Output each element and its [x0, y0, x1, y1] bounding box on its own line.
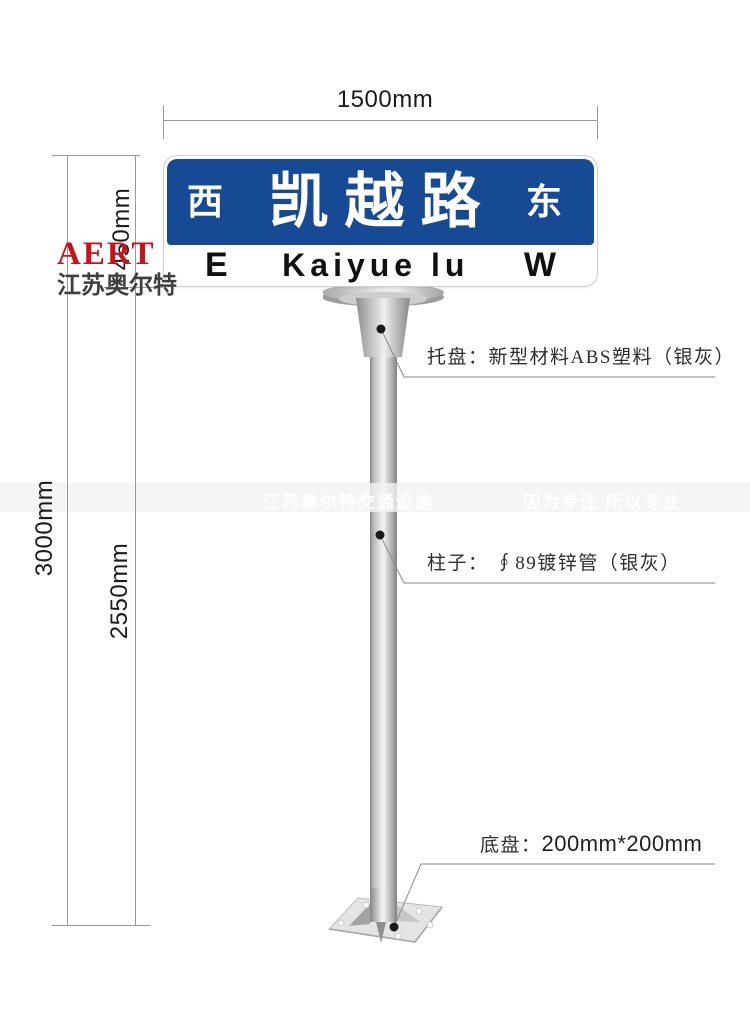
tray-neck [356, 298, 410, 357]
bolt-hole [338, 920, 344, 926]
logo-brand-text: AERT [57, 238, 177, 271]
sign-direction-west: 西 [187, 184, 223, 220]
bolt-hole [363, 902, 369, 908]
logo-company-text: 江苏奥尔特 [57, 274, 177, 298]
sign-blue-panel: 西 凯越路 东 [167, 159, 594, 245]
annotation-pole: 柱子： ∮89镀锌管（银灰） [427, 548, 681, 575]
diagram-canvas: 江苏奥尔特交通设施 因为专注 所以专业 [0, 0, 750, 1021]
street-sign-board: 西 凯越路 东 E Kaiyue lu W [163, 155, 598, 287]
sign-road-name-cn: 凯越路 [253, 172, 497, 232]
bolt-hole [427, 922, 433, 928]
dimension-label-pole-height: 2550mm [106, 535, 134, 647]
bolt-hole [416, 908, 422, 914]
base-plate-graphic [320, 888, 465, 954]
dimension-label-width: 1500mm [325, 86, 445, 114]
sign-white-strip: E Kaiyue lu W [167, 245, 594, 285]
pole-bottom [370, 888, 397, 922]
dimension-label-total-height: 3000mm [31, 472, 59, 584]
watermark-text-right: 因为专注 所以专业 [523, 488, 682, 512]
pole-shaft [370, 356, 397, 890]
sign-road-name-en: Kaiyue lu [282, 249, 469, 281]
annotation-base: 底盘：200mm*200mm [480, 830, 702, 857]
bolt-hole [395, 933, 401, 939]
watermark-band: 江苏奥尔特交通设施 因为专注 所以专业 [0, 483, 750, 512]
watermark-text-left: 江苏奥尔特交通设施 [263, 488, 434, 512]
company-logo: AERT 江苏奥尔特 [57, 238, 177, 298]
annotation-tray: 托盘：新型材料ABS塑料（银灰） [427, 342, 735, 369]
sign-direction-w: W [524, 248, 556, 282]
sign-direction-east: 东 [526, 184, 562, 220]
annotation-base-prefix: 底盘： [480, 835, 542, 856]
sign-direction-e: E [205, 248, 228, 282]
annotation-base-size: 200mm*200mm [542, 831, 703, 856]
